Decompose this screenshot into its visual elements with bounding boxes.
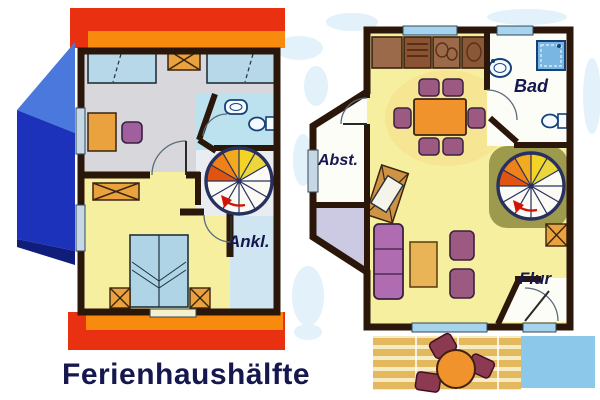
armchair-icon (450, 269, 474, 298)
cabinet-icon (546, 224, 567, 246)
twin-bed-icon (207, 52, 275, 83)
dining-chair-icon (419, 138, 439, 155)
dining-chair-icon (419, 79, 439, 96)
nightstand-icon (110, 288, 130, 308)
desk-icon (88, 113, 116, 151)
toilet-icon (249, 117, 275, 131)
terrace (373, 332, 595, 392)
storage-label: Abst. (317, 152, 358, 169)
kitchen-counter-icon (372, 37, 487, 68)
spiral-staircase-icon (498, 153, 564, 219)
dressing-room-floor (230, 216, 277, 313)
twin-bed-icon (88, 52, 156, 83)
dining-chair-icon (443, 79, 463, 96)
dining-table-icon (414, 99, 466, 135)
spiral-staircase-icon (206, 148, 272, 214)
house-gable-3d (17, 42, 75, 265)
floorplan-canvas: Ankl. (0, 0, 600, 400)
toilet-icon (542, 114, 567, 128)
double-bed-icon (130, 235, 188, 307)
dressing-room-label: Ankl. (227, 232, 270, 251)
sofa-icon (374, 224, 403, 299)
ground-floor-plan: Bad Abst. Flur (308, 26, 570, 332)
dining-chair-icon (443, 138, 463, 155)
bathroom-label: Bad (514, 76, 549, 96)
dresser-icon (93, 183, 139, 200)
dining-chair-icon (394, 108, 411, 128)
roof-band-top-orange (88, 31, 285, 48)
nightstand-icon (190, 288, 210, 308)
coffee-table-icon (410, 242, 437, 287)
sink-icon (489, 59, 511, 77)
sink-icon (225, 100, 247, 114)
shower-icon (537, 41, 565, 70)
caption-title: Ferienhaushälfte (62, 358, 310, 391)
patio-table-icon (437, 350, 475, 388)
floorplan-svg: Ankl. (0, 0, 600, 400)
armchair-icon (450, 231, 474, 260)
dining-chair-icon (468, 108, 485, 128)
upper-floor-plan: Ankl. (17, 8, 285, 350)
garden-path (521, 336, 595, 388)
desk-chair-icon (122, 122, 142, 143)
hallway-label: Flur (519, 269, 552, 288)
